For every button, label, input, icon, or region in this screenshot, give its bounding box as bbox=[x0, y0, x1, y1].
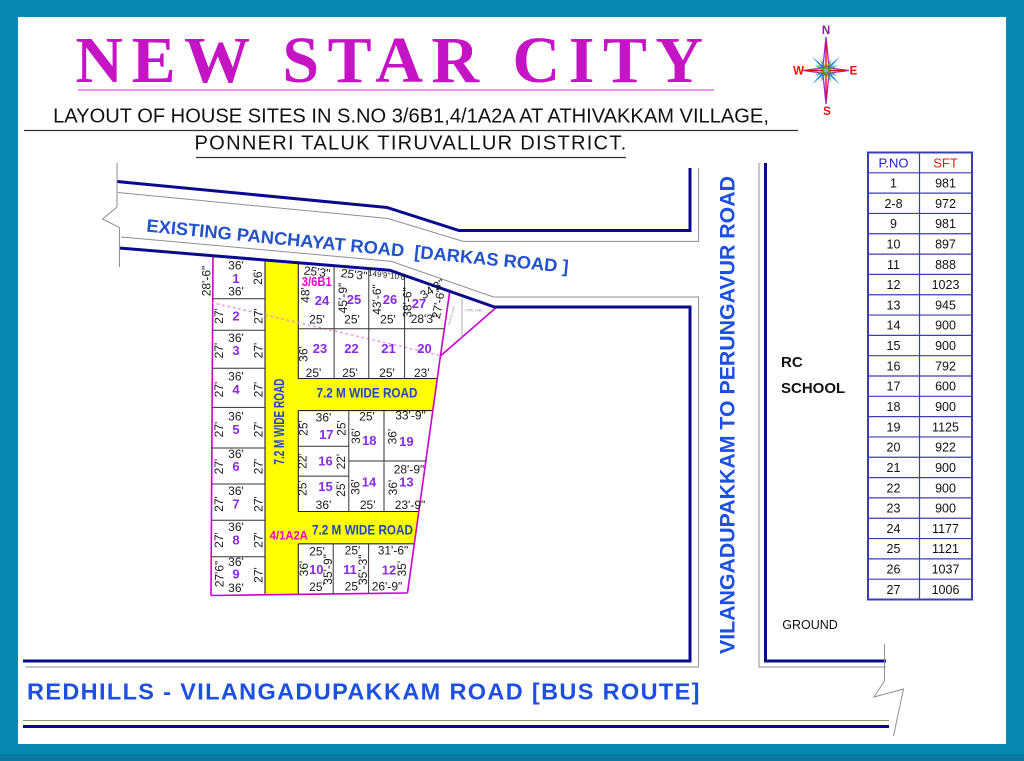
svg-text:26'-9": 26'-9" bbox=[372, 579, 403, 593]
svg-text:25': 25' bbox=[380, 313, 396, 327]
svg-text:1: 1 bbox=[890, 176, 897, 190]
svg-text:27': 27' bbox=[252, 567, 266, 583]
svg-text:17: 17 bbox=[319, 427, 333, 442]
svg-text:36': 36' bbox=[228, 581, 244, 595]
svg-text:19: 19 bbox=[399, 434, 413, 449]
svg-text:11: 11 bbox=[343, 562, 357, 577]
svg-text:897: 897 bbox=[935, 237, 956, 251]
svg-text:14: 14 bbox=[362, 475, 377, 490]
svg-text:SFT: SFT bbox=[933, 156, 958, 171]
svg-text:36': 36' bbox=[316, 498, 332, 512]
svg-text:5: 5 bbox=[232, 422, 239, 437]
svg-text:900: 900 bbox=[935, 339, 956, 353]
svg-text:4: 4 bbox=[232, 382, 240, 397]
svg-text:23: 23 bbox=[313, 341, 327, 356]
svg-text:9: 9 bbox=[232, 567, 239, 582]
svg-text:VILANGADUPAKKAM TO PERUNGAVUR: VILANGADUPAKKAM TO PERUNGAVUR ROAD bbox=[716, 176, 740, 654]
svg-text:792: 792 bbox=[935, 359, 956, 373]
svg-text:27': 27' bbox=[212, 422, 226, 438]
svg-text:25: 25 bbox=[347, 292, 361, 307]
svg-text:23'-9": 23'-9" bbox=[395, 498, 426, 512]
svg-text:16: 16 bbox=[887, 359, 901, 373]
svg-text:23': 23' bbox=[414, 366, 430, 380]
svg-text:33'-9": 33'-9" bbox=[395, 409, 426, 423]
svg-text:36': 36' bbox=[349, 428, 363, 444]
svg-text:27': 27' bbox=[252, 308, 266, 324]
svg-text:24: 24 bbox=[315, 293, 330, 308]
svg-text:SCHOOL: SCHOOL bbox=[781, 380, 845, 397]
svg-text:19: 19 bbox=[887, 420, 901, 434]
svg-text:23: 23 bbox=[887, 502, 901, 516]
svg-text:25': 25' bbox=[345, 580, 361, 594]
svg-text:14: 14 bbox=[887, 319, 901, 333]
svg-text:7.2 M WIDE ROAD: 7.2 M WIDE ROAD bbox=[312, 522, 413, 538]
svg-text:20: 20 bbox=[887, 441, 901, 455]
svg-text:25': 25' bbox=[296, 480, 310, 496]
svg-text:4/1A2A: 4/1A2A bbox=[270, 528, 308, 542]
svg-text:922: 922 bbox=[935, 441, 956, 455]
svg-text:900: 900 bbox=[935, 481, 956, 495]
svg-text:8: 8 bbox=[232, 533, 239, 548]
svg-text:1037: 1037 bbox=[932, 563, 960, 577]
svg-text:972: 972 bbox=[935, 197, 956, 211]
svg-text:25': 25' bbox=[309, 313, 325, 327]
svg-text:2: 2 bbox=[232, 309, 239, 324]
svg-text:1121: 1121 bbox=[932, 542, 959, 556]
svg-text:26': 26' bbox=[251, 269, 265, 285]
svg-text:10: 10 bbox=[887, 237, 901, 251]
svg-text:21: 21 bbox=[381, 341, 395, 356]
svg-text:25': 25' bbox=[306, 366, 322, 380]
svg-text:11: 11 bbox=[887, 258, 900, 272]
svg-text:18: 18 bbox=[887, 400, 901, 414]
svg-text:25: 25 bbox=[887, 542, 901, 556]
svg-text:36': 36' bbox=[349, 479, 363, 495]
svg-text:27': 27' bbox=[212, 459, 226, 475]
svg-text:27': 27' bbox=[212, 382, 226, 398]
svg-text:28'-6": 28'-6" bbox=[200, 266, 214, 297]
svg-text:888: 888 bbox=[935, 258, 956, 272]
svg-text:NEW STAR CITY: NEW STAR CITY bbox=[75, 24, 711, 97]
svg-text:27: 27 bbox=[887, 583, 901, 597]
svg-text:981: 981 bbox=[935, 217, 956, 231]
svg-text:36': 36' bbox=[386, 429, 400, 445]
svg-text:27': 27' bbox=[252, 343, 266, 359]
svg-text:26: 26 bbox=[887, 563, 901, 577]
svg-text:3: 3 bbox=[232, 343, 239, 358]
svg-text:13: 13 bbox=[887, 298, 901, 312]
svg-text:25': 25' bbox=[297, 420, 311, 436]
svg-text:7.2 M WIDE ROAD: 7.2 M WIDE ROAD bbox=[317, 385, 418, 401]
svg-text:900: 900 bbox=[935, 502, 956, 516]
svg-text:27': 27' bbox=[212, 532, 226, 548]
svg-text:24: 24 bbox=[887, 522, 901, 536]
svg-text:36': 36' bbox=[297, 346, 311, 362]
svg-text:1177: 1177 bbox=[932, 522, 959, 536]
svg-text:LAYOUT OF HOUSE SITES IN S.NO: LAYOUT OF HOUSE SITES IN S.NO 3/6B1,4/1A… bbox=[53, 106, 769, 128]
svg-text:S: S bbox=[823, 106, 831, 118]
svg-text:36': 36' bbox=[386, 480, 400, 496]
svg-text:6: 6 bbox=[232, 459, 239, 474]
svg-text:25': 25' bbox=[359, 410, 375, 424]
svg-text:1023: 1023 bbox=[932, 278, 960, 292]
svg-text:21: 21 bbox=[887, 461, 901, 475]
svg-text:27': 27' bbox=[212, 496, 226, 512]
svg-text:27': 27' bbox=[252, 382, 266, 398]
svg-text:26: 26 bbox=[383, 292, 397, 307]
svg-text:981: 981 bbox=[935, 176, 956, 190]
svg-text:RC: RC bbox=[781, 354, 803, 371]
svg-text:25': 25' bbox=[360, 498, 376, 512]
svg-text:GROUND: GROUND bbox=[782, 618, 838, 632]
svg-text:N: N bbox=[822, 25, 830, 37]
svg-text:PONNERI TALUK TIRUVALLUR DISTR: PONNERI TALUK TIRUVALLUR DISTRICT. bbox=[195, 133, 628, 155]
svg-text:22': 22' bbox=[296, 453, 310, 469]
svg-text:27: 27 bbox=[412, 296, 426, 311]
svg-text:1125: 1125 bbox=[932, 420, 959, 434]
svg-text:27'6": 27'6" bbox=[213, 561, 227, 588]
svg-text:13: 13 bbox=[399, 475, 413, 490]
svg-text:36': 36' bbox=[316, 411, 332, 425]
svg-text:900: 900 bbox=[935, 461, 956, 475]
svg-text:48': 48' bbox=[299, 287, 313, 303]
svg-text:28'3": 28'3" bbox=[411, 312, 438, 326]
svg-text:27': 27' bbox=[252, 422, 266, 438]
svg-text:25': 25' bbox=[342, 366, 358, 380]
svg-text:22': 22' bbox=[334, 454, 348, 470]
svg-text:2-8: 2-8 bbox=[884, 197, 902, 211]
svg-text:27': 27' bbox=[252, 459, 266, 475]
svg-text:27': 27' bbox=[252, 496, 266, 512]
svg-text:20: 20 bbox=[417, 341, 431, 356]
svg-text:27': 27' bbox=[212, 308, 226, 324]
svg-text:W: W bbox=[793, 66, 804, 78]
svg-text:16: 16 bbox=[318, 453, 332, 468]
svg-text:E: E bbox=[850, 66, 858, 78]
svg-text:9: 9 bbox=[890, 217, 897, 231]
svg-text:35': 35' bbox=[395, 561, 409, 577]
svg-text:25': 25' bbox=[309, 580, 325, 594]
svg-text:25': 25' bbox=[379, 366, 395, 380]
svg-text:27': 27' bbox=[212, 343, 226, 359]
svg-text:36': 36' bbox=[228, 285, 244, 299]
svg-text:27': 27' bbox=[252, 532, 266, 548]
svg-text:25': 25' bbox=[334, 481, 348, 497]
svg-text:15: 15 bbox=[318, 479, 332, 494]
svg-text:25': 25' bbox=[344, 313, 360, 327]
svg-text:12: 12 bbox=[887, 278, 901, 292]
svg-text:7.2 M WIDE ROAD: 7.2 M WIDE ROAD bbox=[271, 378, 288, 464]
svg-text:945: 945 bbox=[935, 298, 956, 312]
svg-text:7: 7 bbox=[232, 497, 239, 512]
svg-text:31'-6": 31'-6" bbox=[378, 544, 409, 558]
svg-text:900: 900 bbox=[935, 319, 956, 333]
svg-text:REDHILLS - VILANGADUPAKKAM ROA: REDHILLS - VILANGADUPAKKAM ROAD [BUS ROU… bbox=[27, 679, 701, 705]
svg-text:15: 15 bbox=[887, 339, 901, 353]
svg-text:PIPE LINE: PIPE LINE bbox=[465, 309, 483, 313]
svg-text:600: 600 bbox=[935, 380, 956, 394]
svg-text:22: 22 bbox=[344, 341, 358, 356]
svg-text:900: 900 bbox=[935, 400, 956, 414]
svg-text:25': 25' bbox=[335, 420, 349, 436]
svg-text:18: 18 bbox=[362, 433, 376, 448]
svg-text:17: 17 bbox=[887, 380, 901, 394]
svg-text:P.NO: P.NO bbox=[878, 156, 908, 171]
svg-text:22: 22 bbox=[887, 481, 901, 495]
svg-text:1006: 1006 bbox=[932, 583, 960, 597]
